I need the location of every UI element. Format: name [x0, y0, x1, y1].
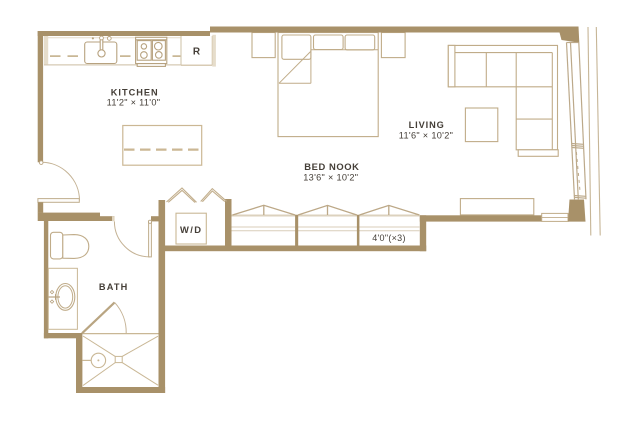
svg-text:4'0"(×3): 4'0"(×3): [372, 233, 406, 243]
svg-text:11'6" × 10'2": 11'6" × 10'2": [399, 131, 453, 141]
svg-text:LIVING: LIVING: [409, 120, 445, 130]
svg-text:W/D: W/D: [180, 224, 202, 235]
svg-text:11'2" × 11'0": 11'2" × 11'0": [107, 97, 161, 107]
svg-text:BED NOOK: BED NOOK: [304, 161, 359, 172]
svg-text:BATH: BATH: [99, 282, 129, 292]
svg-text:R: R: [193, 46, 201, 57]
svg-text:13'6" × 10'2": 13'6" × 10'2": [303, 172, 358, 182]
svg-text:KITCHEN: KITCHEN: [111, 88, 159, 98]
